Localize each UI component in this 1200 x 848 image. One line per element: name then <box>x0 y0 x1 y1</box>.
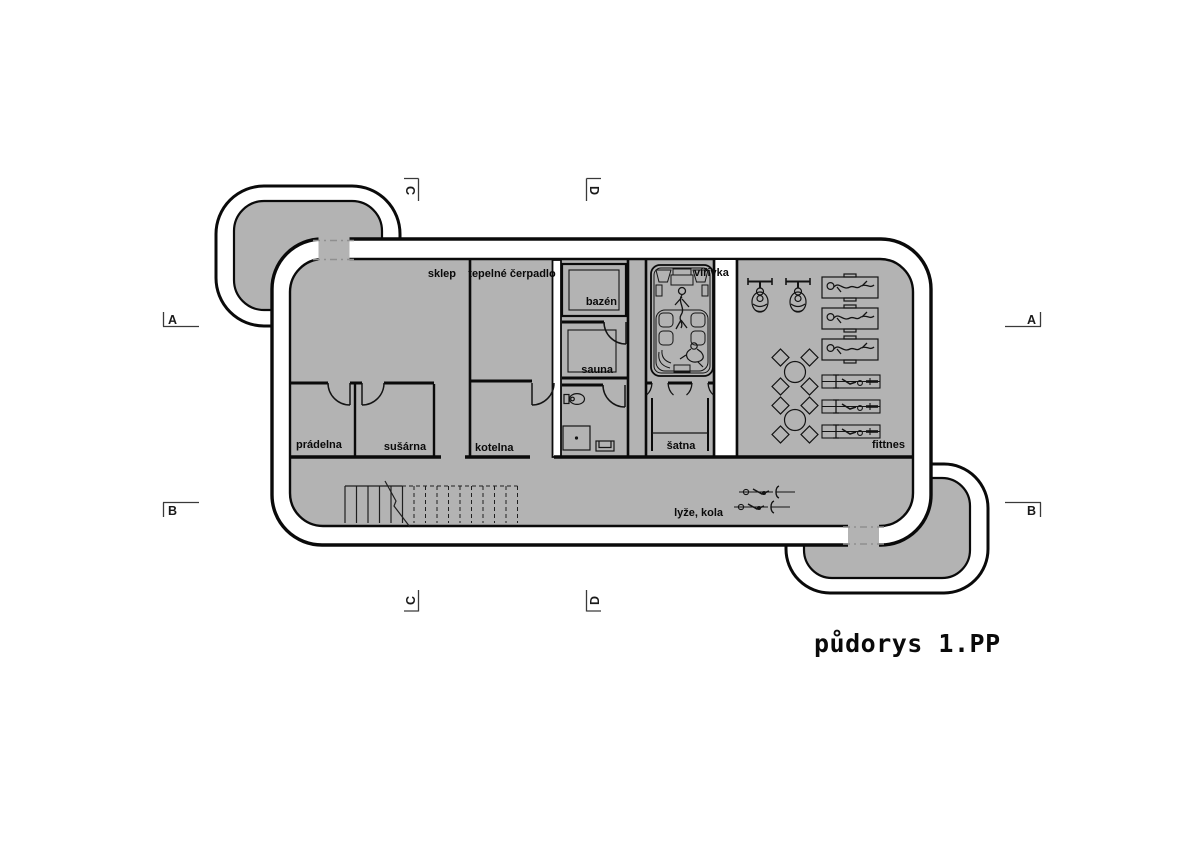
wall-opening-top-left <box>313 237 355 262</box>
section-marker-b-left: B <box>163 503 199 519</box>
section-marker-c-top: C <box>403 179 419 202</box>
thick-wall-boiler-pool <box>553 260 562 457</box>
section-marker-d-top: D <box>587 179 602 202</box>
section-marker-b-right: B <box>1005 503 1041 519</box>
section-letter: B <box>168 504 177 518</box>
label-satna: šatna <box>667 440 697 452</box>
section-letter: D <box>587 186 601 195</box>
section-letter: A <box>1027 313 1036 327</box>
section-marker-a-right: A <box>1005 312 1041 327</box>
label-sauna: sauna <box>581 364 614 376</box>
section-letter: D <box>588 596 602 605</box>
floor-plan-drawing: sklep tepelné čerpadlo bazén sauna vířiv… <box>0 0 1200 848</box>
page-title: půdorys 1.PP <box>814 629 1001 658</box>
wall-opening-bottom-right <box>843 525 885 548</box>
label-bazen: bazén <box>586 296 617 308</box>
label-lyze-kola: lyže, kola <box>674 507 724 519</box>
label-sklep: sklep <box>428 268 456 280</box>
building-outline <box>272 239 931 545</box>
floor-plan-page: sklep tepelné čerpadlo bazén sauna vířiv… <box>0 0 1200 848</box>
section-letter: A <box>168 313 177 327</box>
section-marker-d-bottom: D <box>587 590 603 612</box>
label-kotelna: kotelna <box>475 442 514 454</box>
label-susarna: sušárna <box>384 441 427 453</box>
section-letter: C <box>404 596 418 605</box>
label-fittnes: fittnes <box>872 439 905 451</box>
label-virivka: vířivka <box>694 267 730 279</box>
label-pradelna: prádelna <box>296 439 343 451</box>
shaft-wall <box>715 260 735 456</box>
section-marker-c-bottom: C <box>404 590 419 612</box>
section-letter: B <box>1027 504 1036 518</box>
section-marker-a-left: A <box>163 312 199 327</box>
label-tepelne-cerpadlo: tepelné čerpadlo <box>468 268 556 280</box>
section-letter: C <box>403 186 417 195</box>
